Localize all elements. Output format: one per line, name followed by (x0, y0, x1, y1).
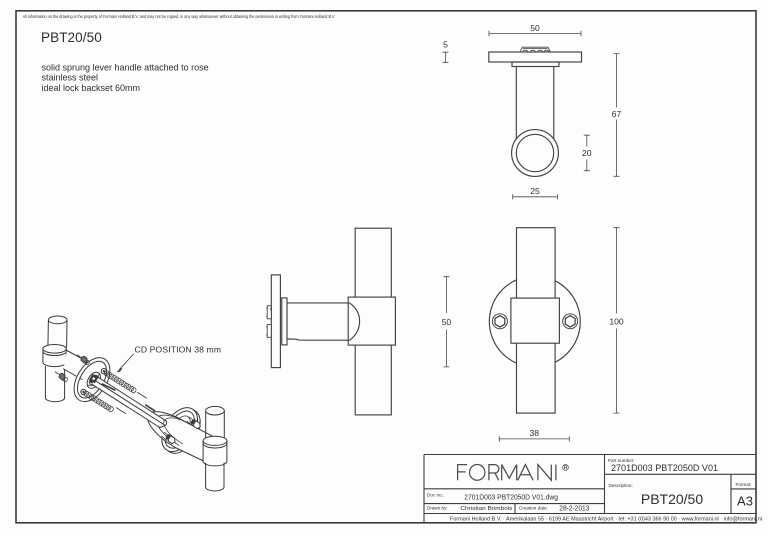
svg-text:Format:: Format: (736, 482, 752, 487)
svg-text:Description:: Description: (609, 483, 633, 488)
svg-text:A3: A3 (737, 494, 753, 509)
svg-text:50: 50 (530, 23, 540, 33)
svg-text:CD POSITION 38 mm: CD POSITION 38 mm (135, 344, 222, 354)
svg-text:All information on the drawing: All information on the drawing is the pr… (23, 14, 335, 19)
svg-text:20: 20 (582, 148, 592, 158)
svg-text:stainless steel: stainless steel (42, 73, 99, 83)
svg-text:Creation date:: Creation date: (519, 506, 548, 511)
svg-text:PBT20/50: PBT20/50 (41, 30, 102, 45)
svg-text:solid sprung lever handle atta: solid sprung lever handle attached to ro… (42, 63, 209, 73)
svg-text:2701D003 PBT2050D V01.dwg: 2701D003 PBT2050D V01.dwg (464, 492, 558, 501)
svg-text:PBT20/50: PBT20/50 (641, 491, 703, 507)
svg-text:Drawn by:: Drawn by: (427, 506, 448, 511)
svg-text:28-2-2013: 28-2-2013 (559, 504, 589, 513)
svg-text:Christian Brimbois: Christian Brimbois (460, 506, 512, 512)
svg-text:50: 50 (442, 317, 452, 327)
svg-text:100: 100 (609, 316, 624, 326)
svg-text:Formani Holland B.V. · Ameri: Formani Holland B.V. · Amerikalaan 55 · … (450, 517, 762, 523)
svg-text:2701D003 PBT2050D V01: 2701D003 PBT2050D V01 (611, 463, 718, 473)
svg-text:5: 5 (443, 40, 448, 50)
svg-text:38: 38 (530, 428, 540, 438)
svg-text:ideal lock backset 60mm: ideal lock backset 60mm (42, 83, 141, 93)
svg-text:Doc no.:: Doc no.: (427, 493, 444, 498)
svg-text:67: 67 (612, 109, 622, 119)
svg-text:25: 25 (530, 186, 540, 196)
